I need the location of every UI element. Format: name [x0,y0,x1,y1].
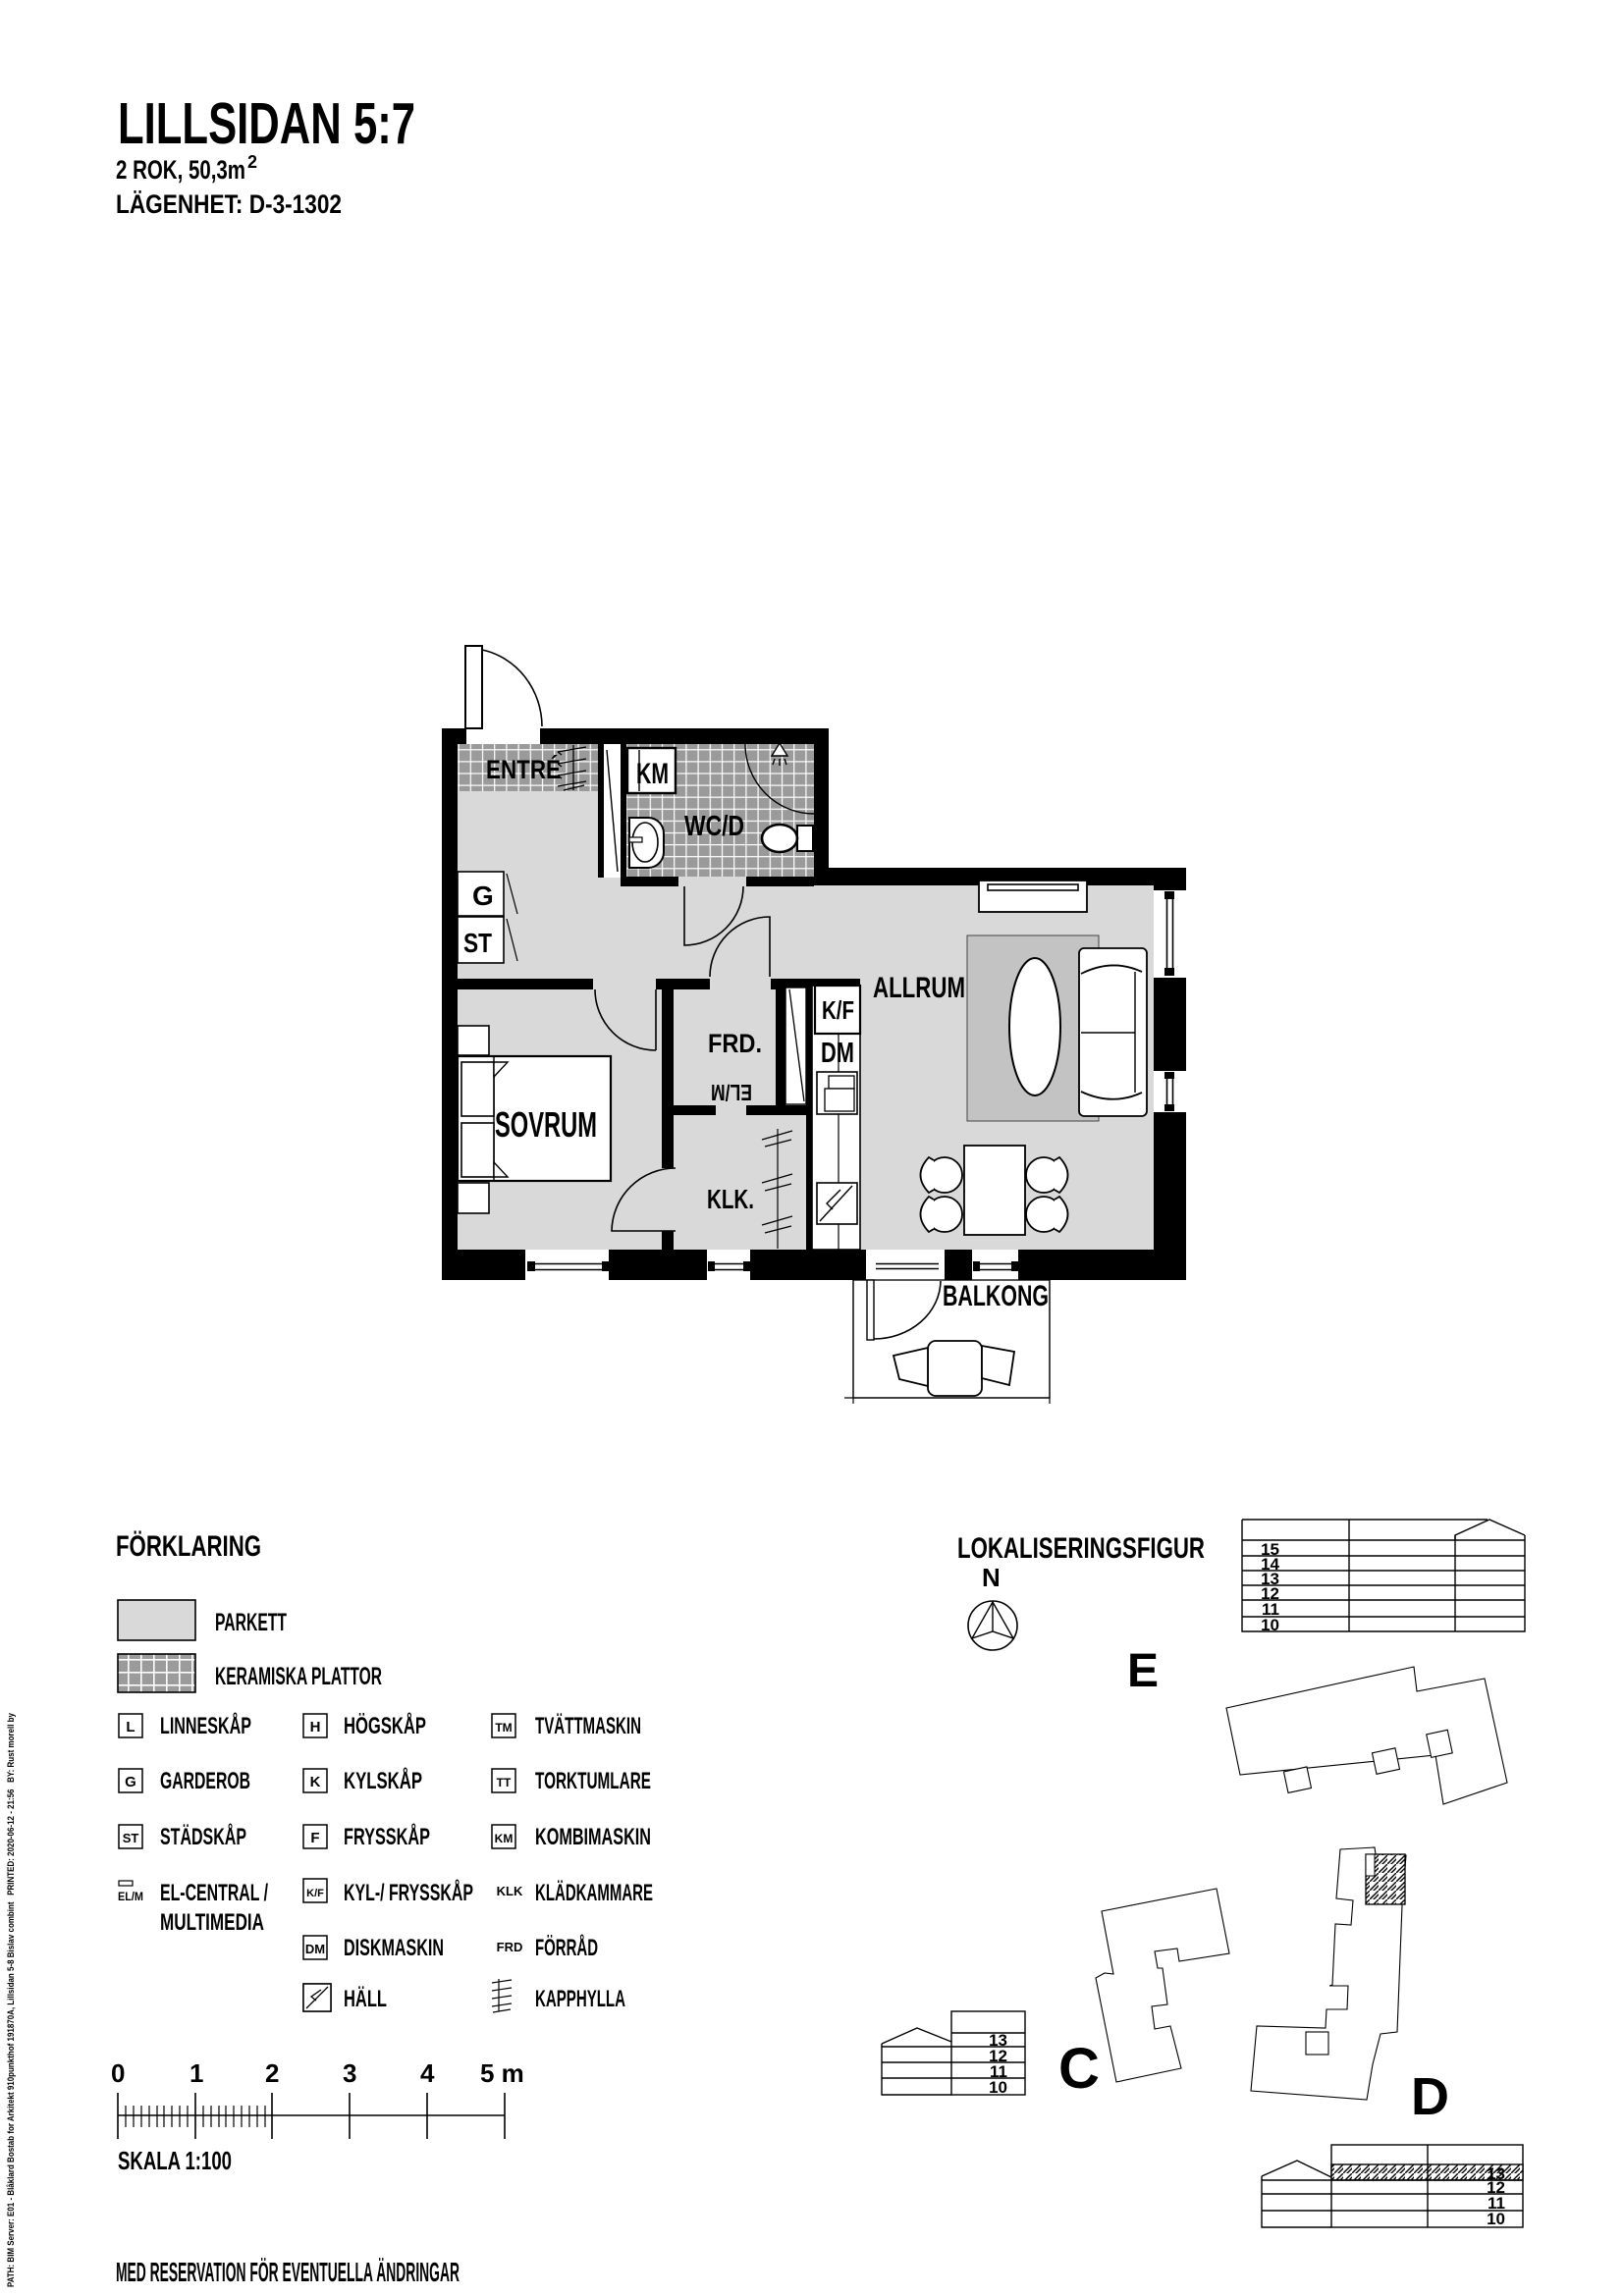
svg-text:KLÄDKAMMARE: KLÄDKAMMARE [535,1880,653,1906]
svg-text:KM: KM [495,1832,514,1845]
svg-text:KLK.: KLK. [707,1184,754,1214]
svg-text:TVÄTTMASKIN: TVÄTTMASKIN [535,1713,641,1739]
svg-text:DISKMASKIN: DISKMASKIN [344,1935,444,1961]
svg-text:KOMBIMASKIN: KOMBIMASKIN [535,1824,651,1850]
svg-text:GARDEROB: GARDEROB [160,1768,250,1794]
svg-text:K: K [310,1774,321,1790]
svg-text:EL/M: EL/M [118,1890,143,1903]
svg-text:0: 0 [111,2058,125,2088]
svg-text:D: D [1411,2067,1449,2126]
svg-text:ST: ST [463,928,492,958]
svg-text:FÖRRÅD: FÖRRÅD [535,1934,598,1961]
svg-text:MED RESERVATION FÖR EVENTUELLA: MED RESERVATION FÖR EVENTUELLA ÄNDRINGAR [116,2257,460,2287]
svg-text:SOVRUM: SOVRUM [495,1104,597,1145]
svg-text:FRD: FRD [497,1940,523,1954]
svg-text:KERAMISKA PLATTOR: KERAMISKA PLATTOR [215,1663,382,1690]
svg-text:PARKETT: PARKETT [215,1609,287,1636]
svg-text:KYL-/ FRYSSKÅP: KYL-/ FRYSSKÅP [344,1879,473,1906]
svg-text:LÄGENHET: D-3-1302: LÄGENHET: D-3-1302 [116,189,342,219]
svg-text:F: F [310,1830,319,1846]
svg-text:FRYSSKÅP: FRYSSKÅP [344,1823,430,1850]
svg-text:2 ROK, 50,3m: 2 ROK, 50,3m [116,155,245,185]
svg-text:ST: ST [123,1831,139,1845]
svg-text:H: H [310,1719,321,1735]
svg-text:KM: KM [636,758,669,790]
svg-text:KAPPHYLLA: KAPPHYLLA [535,1986,625,2012]
svg-text:KYLSKÅP: KYLSKÅP [344,1767,422,1794]
svg-text:ENTRÉ: ENTRÉ [486,754,561,784]
svg-text:TT: TT [497,1776,512,1789]
svg-text:10: 10 [1487,2210,1505,2228]
svg-text:K/F: K/F [306,1888,324,1899]
svg-text:HÖGSKÅP: HÖGSKÅP [344,1712,426,1739]
svg-text:E: E [1127,1645,1159,1697]
svg-text:TM: TM [495,1721,512,1735]
svg-text:EL-CENTRAL /: EL-CENTRAL / [160,1880,268,1906]
svg-text:WC/D: WC/D [684,811,744,842]
svg-text:BALKONG: BALKONG [943,1280,1049,1312]
svg-text:FRD.: FRD. [708,1029,762,1058]
svg-text:G: G [472,881,494,911]
svg-text:10: 10 [989,2078,1007,2097]
svg-text:KLK: KLK [497,1884,523,1898]
svg-text:FÖRKLARING: FÖRKLARING [116,1530,261,1563]
svg-text:LOKALISERINGSFIGUR: LOKALISERINGSFIGUR [957,1532,1205,1565]
svg-text:LINNESKÅP: LINNESKÅP [160,1712,251,1739]
svg-text:MULTIMEDIA: MULTIMEDIA [160,1909,264,1936]
svg-text:LILLSIDAN 5:7: LILLSIDAN 5:7 [118,91,415,156]
svg-text:10: 10 [1261,1616,1279,1634]
svg-text:2: 2 [265,2058,279,2088]
svg-text:EL/M: EL/M [711,1080,752,1105]
svg-text:DM: DM [305,1942,325,1956]
svg-text:K/F: K/F [822,995,854,1025]
svg-text:L: L [126,1719,135,1735]
svg-text:2: 2 [247,152,257,172]
svg-text:G: G [125,1774,136,1790]
svg-text:TORKTUMLARE: TORKTUMLARE [535,1768,651,1794]
svg-text:N: N [982,1563,1001,1592]
svg-text:ALLRUM: ALLRUM [873,972,965,1004]
svg-text:C: C [1058,2037,1100,2101]
svg-text:1: 1 [189,2058,203,2088]
svg-text:DM: DM [821,1038,854,1069]
svg-text:SKALA 1:100: SKALA 1:100 [118,2146,232,2175]
svg-text:PATH: BIM Server: E01 - Blåkla: PATH: BIM Server: E01 - Blåklard Bostab … [6,1712,17,2287]
svg-text:3: 3 [343,2058,356,2088]
svg-text:5 m: 5 m [480,2058,524,2088]
svg-text:STÄDSKÅP: STÄDSKÅP [160,1823,246,1850]
svg-text:4: 4 [420,2058,435,2088]
svg-text:HÄLL: HÄLL [344,1986,387,2012]
